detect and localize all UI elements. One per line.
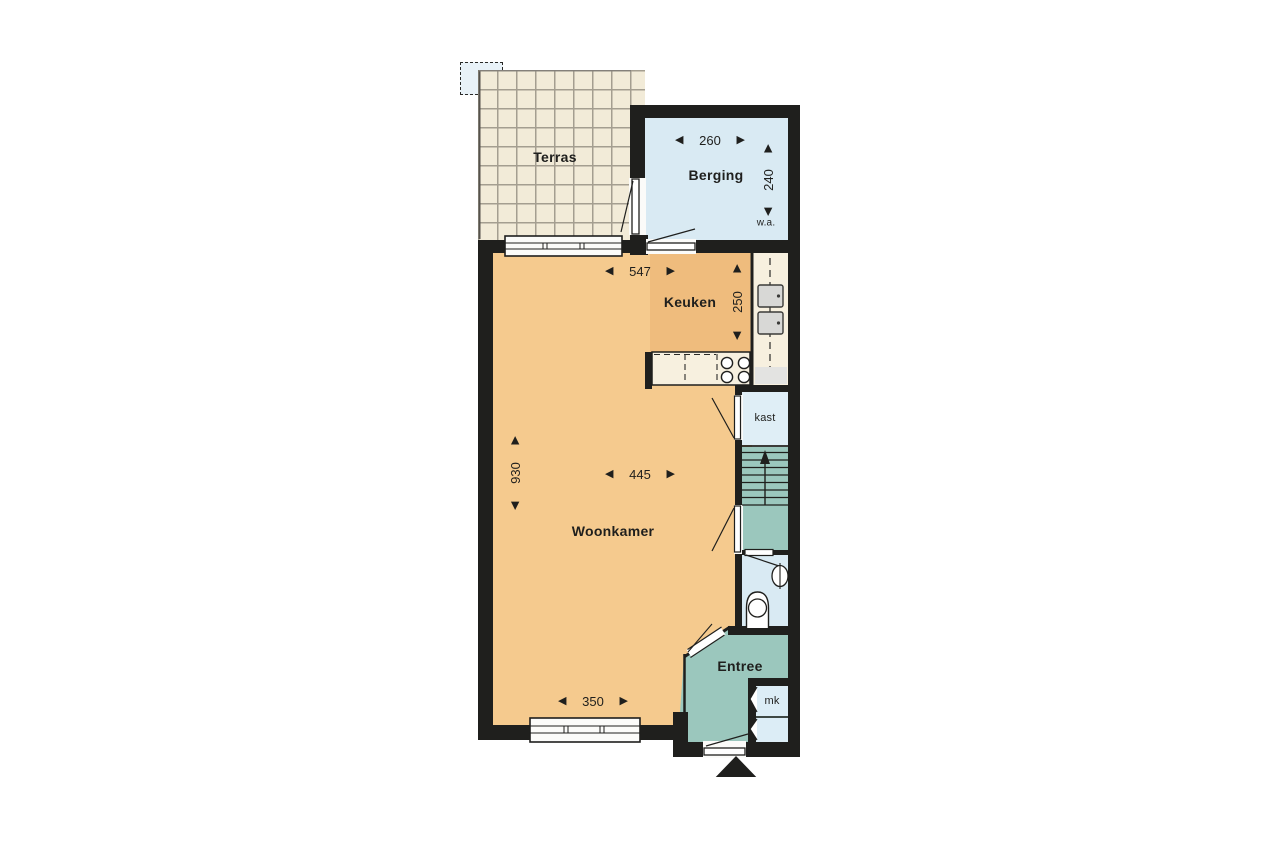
- arrow-left-icon: ◀: [605, 465, 613, 483]
- dim-value: 260: [699, 133, 721, 148]
- wall-living-column: [735, 385, 742, 628]
- wall-band-right: [695, 240, 800, 253]
- floor-plan: Terras Berging Keuken Woonkamer Entree k…: [460, 62, 805, 777]
- toilet-room-area: [742, 555, 788, 628]
- dim-storage-width: ◀ 260 ▶: [675, 131, 745, 149]
- arrow-left-icon: ◀: [675, 131, 683, 149]
- meter-cupboard-lower-area: [756, 718, 788, 742]
- wall-right: [788, 105, 800, 757]
- kitchen-label: Keuken: [664, 294, 716, 310]
- dim-value: 240: [761, 169, 776, 191]
- wall-counter-stub: [645, 352, 652, 389]
- wall-toilet-bottom: [728, 626, 800, 635]
- arrow-right-icon: ▶: [667, 262, 675, 280]
- arrow-down-icon: ◀: [728, 332, 746, 340]
- arrow-down-icon: ◀: [506, 502, 524, 510]
- wall-bottom-entrance: [688, 742, 800, 757]
- arrow-up-icon: ▶: [506, 436, 524, 444]
- dim-kitchen-depth: ◀ 250 ▶: [728, 264, 746, 340]
- arrow-left-icon: ◀: [558, 692, 566, 710]
- entrance-arrow-icon: [709, 756, 763, 777]
- wall-terrace-storage: [630, 105, 645, 178]
- wall-mk-top: [753, 678, 788, 686]
- dim-window-width: ◀ 350 ▶: [558, 692, 628, 710]
- dim-value: 250: [730, 291, 745, 313]
- closet-label: kast: [755, 412, 776, 424]
- wall-bottom-living: [478, 725, 673, 740]
- arrow-down-icon: ◀: [759, 208, 777, 216]
- wall-left: [478, 240, 493, 740]
- dim-storage-depth: ◀ 240 ▶: [759, 144, 777, 216]
- arrow-up-icon: ▶: [759, 144, 777, 152]
- dim-living-width: ◀ 445 ▶: [605, 465, 675, 483]
- arrow-right-icon: ▶: [667, 465, 675, 483]
- terrace-label: Terras: [533, 149, 577, 165]
- wall-entrance-left: [673, 712, 688, 757]
- dim-value: 547: [629, 264, 651, 279]
- wall-band-mid: [622, 240, 648, 253]
- arrow-up-icon: ▶: [728, 264, 746, 272]
- dim-living-depth: ◀ 930 ▶: [506, 436, 524, 510]
- dim-value: 445: [629, 467, 651, 482]
- wall-top: [630, 105, 800, 118]
- wall-below-counter: [735, 385, 800, 392]
- arrow-left-icon: ◀: [605, 262, 613, 280]
- dim-kitchen-width: ◀ 547 ▶: [605, 262, 675, 280]
- wall-mk-left: [748, 678, 756, 744]
- storage-label: Berging: [689, 167, 744, 183]
- arrow-right-icon: ▶: [620, 692, 628, 710]
- dim-value: 930: [508, 462, 523, 484]
- living-room-label: Woonkamer: [572, 523, 655, 539]
- washer-label: w.a.: [757, 218, 776, 229]
- arrow-right-icon: ▶: [737, 131, 745, 149]
- entrance-label: Entree: [717, 658, 762, 674]
- staircase-area: [742, 447, 788, 555]
- dim-value: 350: [582, 694, 604, 709]
- meter-cupboard-label: mk: [764, 695, 779, 707]
- kitchen-counter-right: [752, 253, 788, 385]
